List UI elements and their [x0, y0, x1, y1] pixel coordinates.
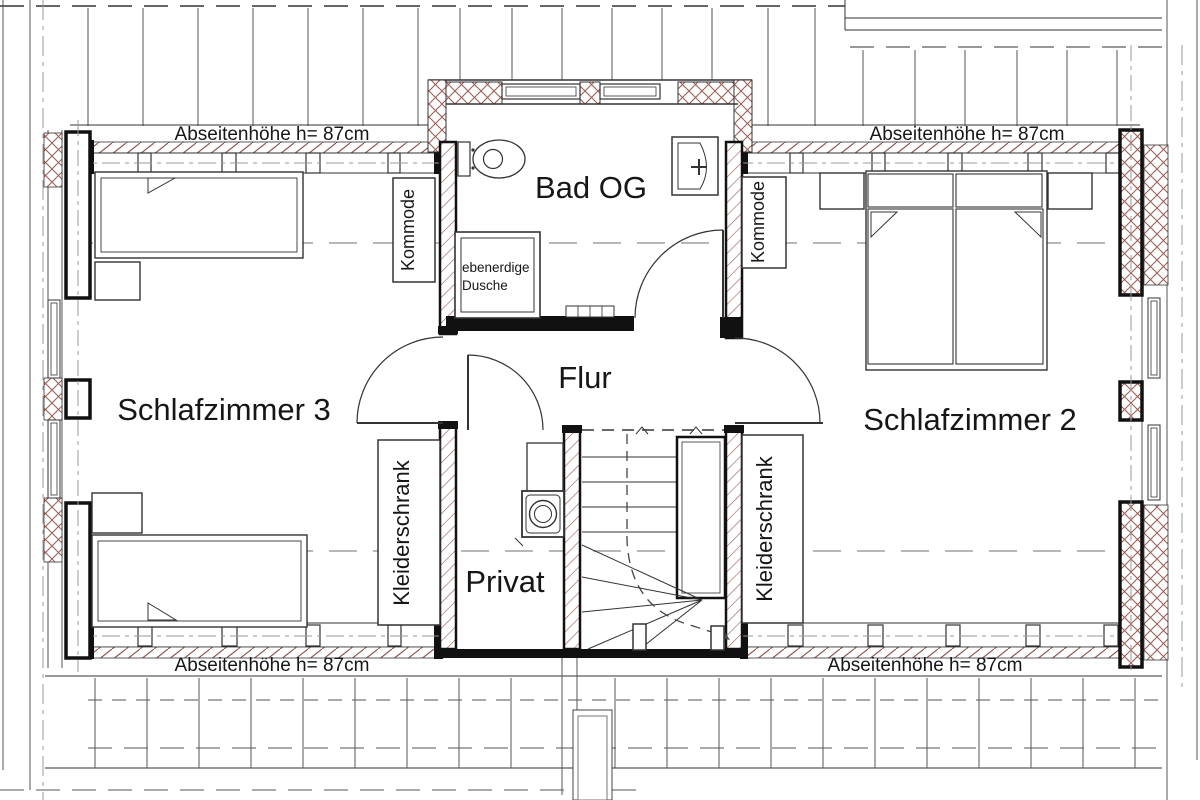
nightstand — [820, 173, 864, 209]
shower-label-line1: ebenerdige — [462, 260, 530, 275]
bed-single-bottom — [92, 493, 307, 627]
right-exterior-wall — [1120, 45, 1168, 676]
door-schlafzimmer3 — [357, 337, 443, 423]
washing-machine — [515, 491, 564, 546]
bed-single-top — [95, 172, 303, 300]
nightstand — [1048, 173, 1092, 209]
knee-wall-label-bottom-right: Abseitenhöhe h= 87cm — [828, 655, 1023, 676]
dresser-label-left: Kommode — [398, 189, 418, 271]
privat-cupboard — [527, 443, 563, 492]
floorplan-canvas: Abseitenhöhe h= 87cm Abseitenhöhe h= 87c… — [0, 0, 1200, 800]
wardrobe-label-left: Kleiderschrank — [389, 459, 414, 606]
shower — [455, 232, 540, 318]
bed-double — [820, 171, 1092, 370]
knee-wall-label-top-right: Abseitenhöhe h= 87cm — [870, 124, 1065, 145]
door-privat — [468, 355, 543, 430]
washbasin — [672, 137, 718, 195]
door-schlafzimmer2 — [735, 338, 823, 423]
shower-label-line2: Dusche — [462, 278, 508, 293]
knee-wall-label-top-left: Abseitenhöhe h= 87cm — [175, 124, 370, 145]
room-label-schlafzimmer2: Schlafzimmer 2 — [863, 402, 1077, 437]
nightstand — [92, 493, 142, 533]
toilet — [458, 140, 525, 178]
left-exterior-wall — [44, 120, 90, 672]
room-label-bad: Bad OG — [535, 170, 647, 205]
floor-drain — [566, 306, 614, 317]
room-label-privat: Privat — [465, 564, 545, 599]
staircase — [582, 427, 730, 650]
right-dormer-window — [1148, 298, 1160, 500]
dresser-label-right: Kommode — [748, 181, 768, 263]
floorplan-drawing: Abseitenhöhe h= 87cm Abseitenhöhe h= 87c… — [0, 0, 1200, 800]
room-label-schlafzimmer3: Schlafzimmer 3 — [117, 392, 331, 427]
room-label-flur: Flur — [558, 360, 611, 395]
nightstand — [95, 262, 140, 300]
wardrobe-label-right: Kleiderschrank — [752, 455, 777, 602]
knee-wall-label-bottom-left: Abseitenhöhe h= 87cm — [175, 655, 370, 676]
